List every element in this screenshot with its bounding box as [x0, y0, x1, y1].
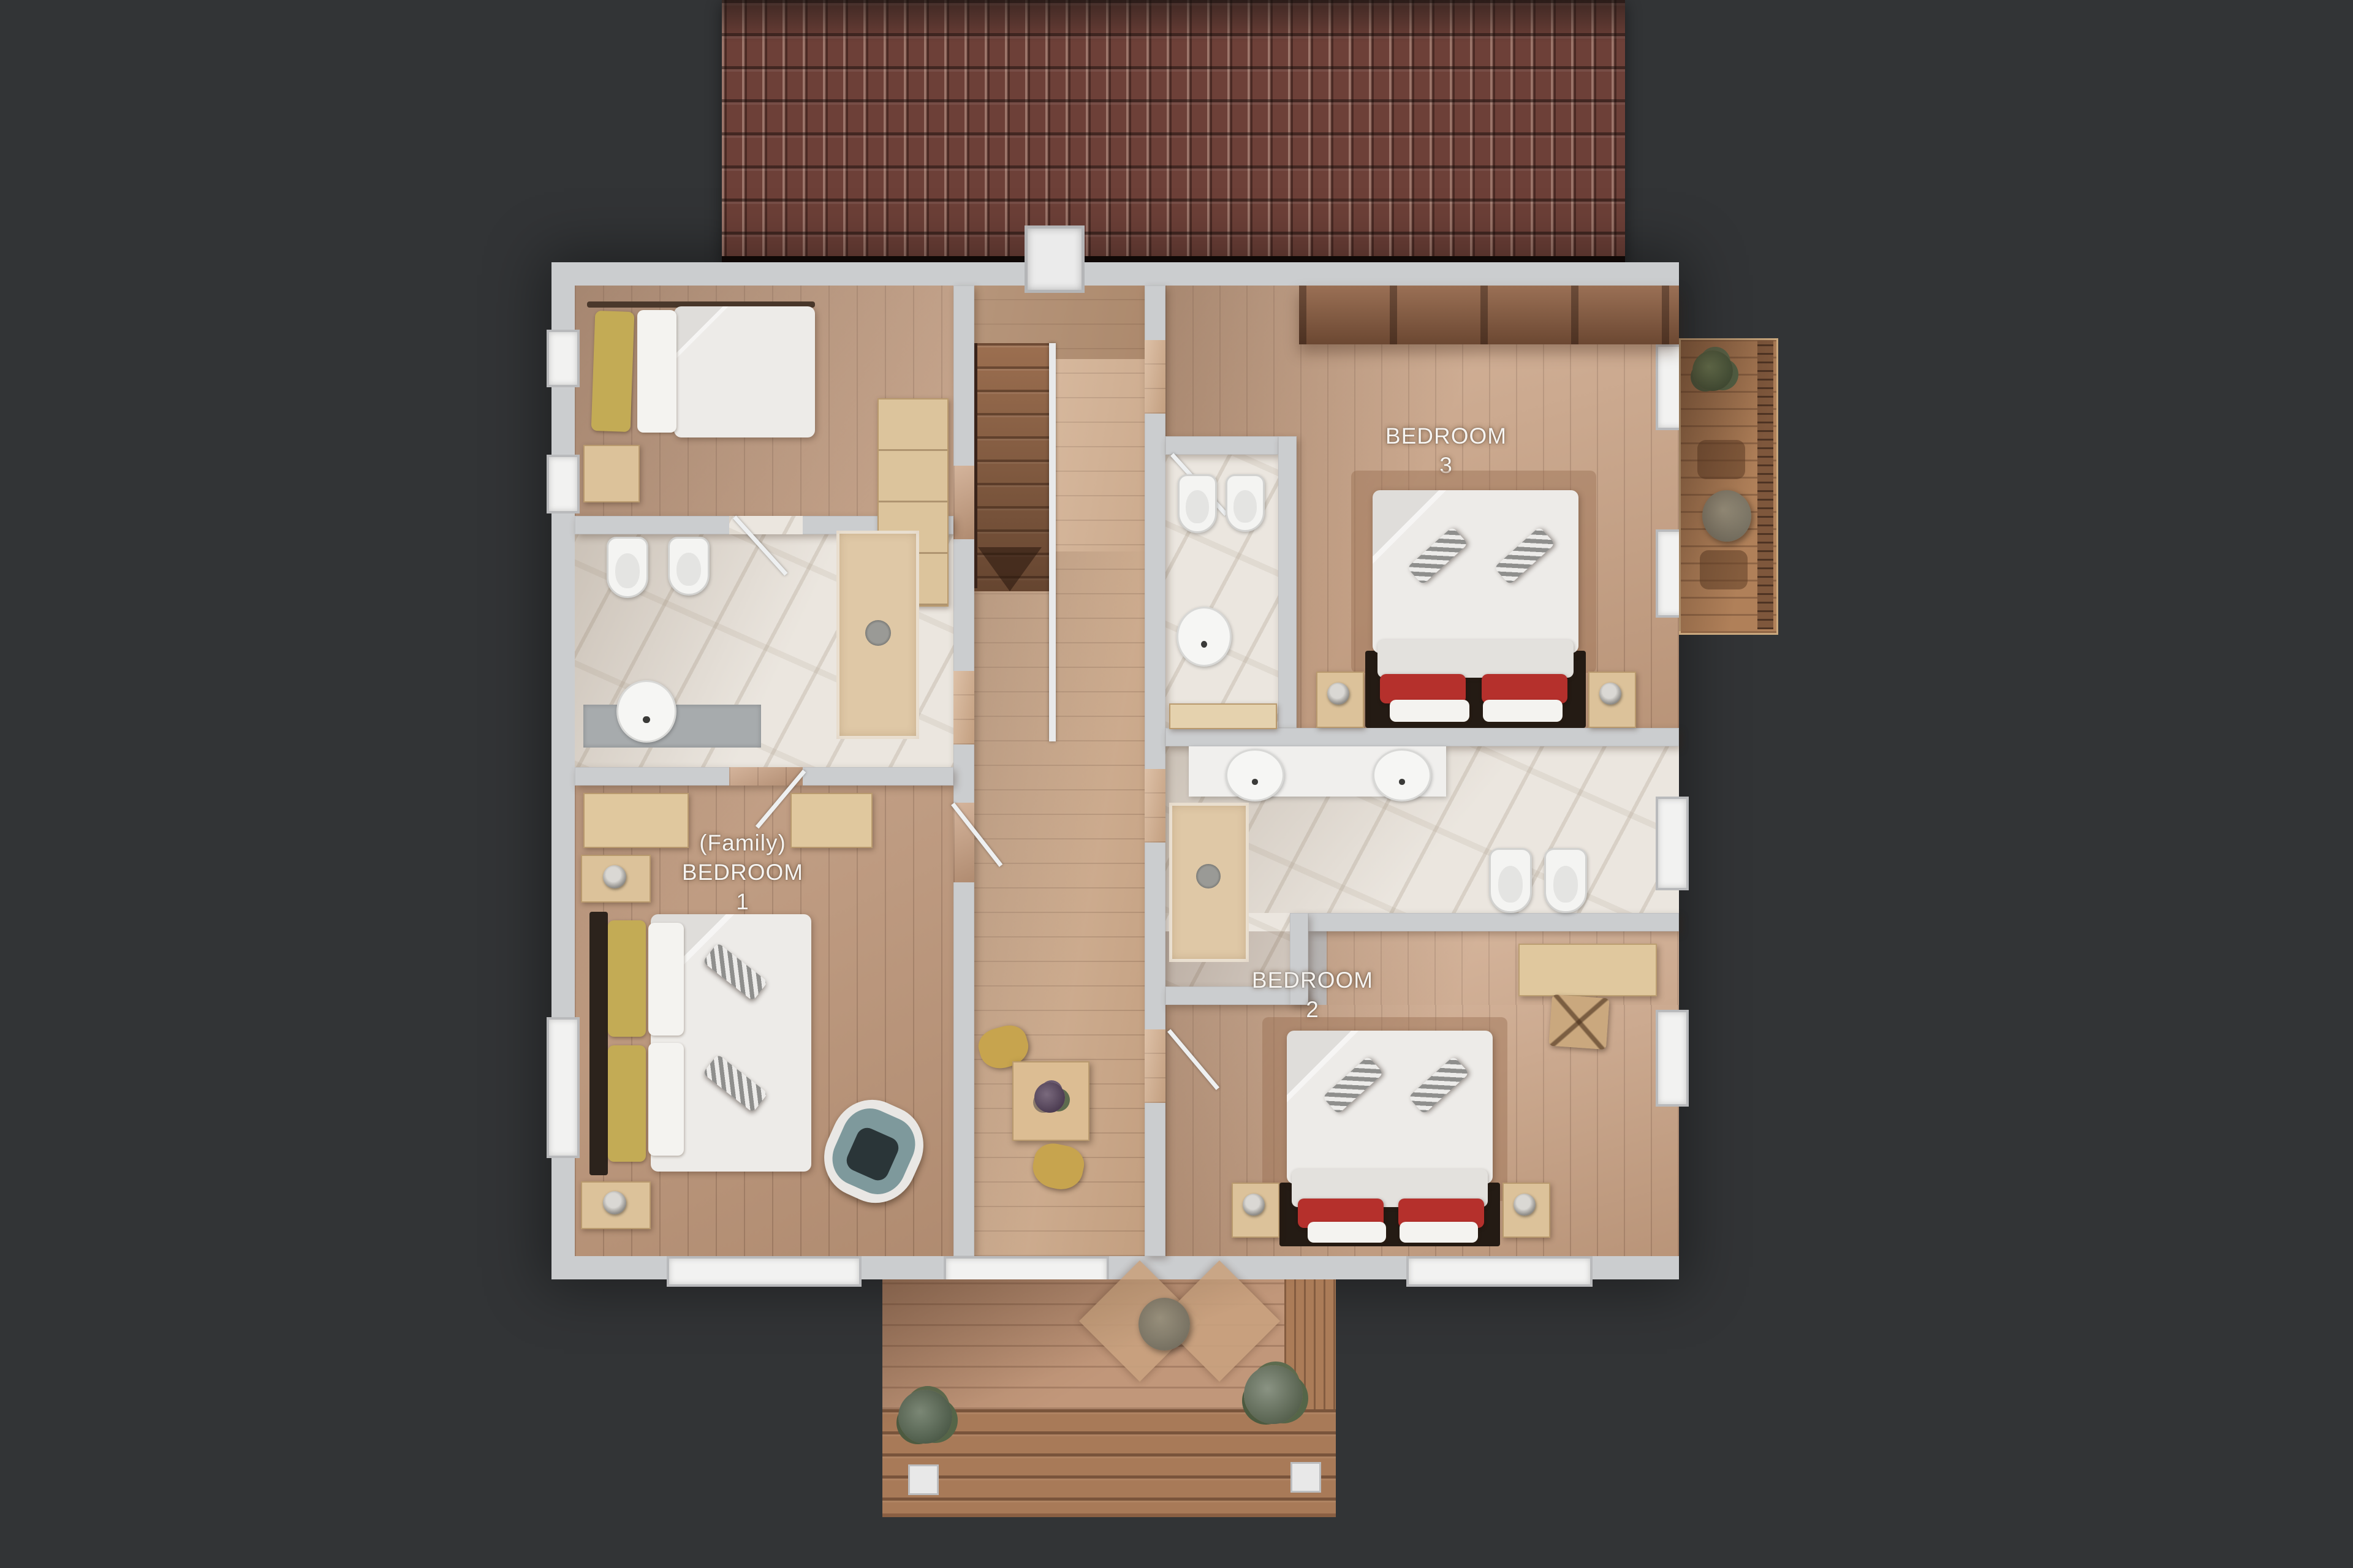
balcony-railing: [1757, 340, 1773, 629]
window-alcove-left: [547, 330, 580, 387]
shared-bath-sink-b: [1373, 749, 1431, 801]
wall-suite-hall: [953, 286, 974, 1256]
window-bedroom2-right: [1656, 1010, 1689, 1107]
bedroom2-pillow-white-b: [1400, 1222, 1478, 1243]
bedroom1-pillow-yellow-b: [608, 1045, 646, 1162]
bidet-left-bath: [668, 537, 710, 596]
label-bedroom3-line1: BEDROOM: [1354, 422, 1538, 451]
balcony-plant: [1692, 350, 1733, 391]
bedroom2-door-opening: [1145, 1029, 1165, 1103]
ensuite-vanity: [1169, 703, 1277, 729]
terrace-table: [1139, 1298, 1190, 1350]
wall-bedroom3-bath: [1165, 728, 1679, 746]
terrace-post-right: [1290, 1462, 1321, 1493]
bedroom3-duvet: [1373, 490, 1578, 653]
stair-direction-marker: [978, 547, 1042, 591]
bidet-ensuite: [1226, 474, 1265, 532]
bedroom3-pillow-band: [1377, 640, 1574, 678]
bedroom3-closet: [1299, 286, 1679, 344]
toilet-ensuite: [1178, 474, 1217, 533]
label-family-line3: 1: [651, 887, 835, 917]
sink-left-bath: [616, 680, 676, 743]
bedroom3-pillow-red-a: [1380, 674, 1466, 703]
wall-ensuite-top: [1165, 436, 1278, 455]
bedroom1-pillow-white-a: [648, 923, 684, 1036]
floor-plan-render: (Family) BEDROOM 1 BEDROOM 3: [0, 0, 2353, 1568]
label-family-line2: BEDROOM: [651, 858, 835, 887]
bedroom1-lamp-top: [603, 865, 626, 888]
bedroom2-pillow-white-a: [1308, 1222, 1386, 1243]
nook-plant: [1034, 1082, 1065, 1113]
sink-ensuite: [1176, 607, 1232, 667]
bedroom2-duvet: [1287, 1031, 1493, 1184]
alcove-nightstand: [583, 445, 640, 502]
bedroom2-desk: [1518, 944, 1657, 996]
balcony-chair-top: [1697, 440, 1745, 479]
wall-ensuite-right: [1278, 436, 1297, 728]
stair-railing: [974, 343, 977, 588]
label-bedroom2-line1: BEDROOM: [1221, 966, 1404, 995]
label-family-line1: (Family): [651, 828, 835, 858]
bedroom2-chair: [1548, 994, 1610, 1050]
window-bedroom1-bottom: [667, 1256, 862, 1287]
bedroom3-lamp-left: [1327, 683, 1349, 705]
glass-balustrade: [1049, 343, 1056, 741]
bedroom3-lamp-right: [1599, 683, 1621, 705]
balcony-chair-bottom: [1700, 550, 1748, 589]
terrace-post-left: [908, 1464, 939, 1495]
window-bath-left: [547, 455, 580, 513]
bedroom1-pillow-white-b: [648, 1043, 684, 1156]
alcove-bed-duvet: [674, 306, 815, 437]
bedroom2-lamp-left: [1243, 1194, 1265, 1216]
bath-left-door-opening: [953, 671, 974, 744]
bedroom3-pillow-white-a: [1390, 700, 1469, 722]
shower-drain-left: [865, 620, 891, 646]
window-bath-right: [1656, 797, 1689, 890]
bedroom3-door-opening: [1145, 340, 1165, 414]
alcove-door-opening: [953, 466, 974, 539]
bedroom1-lamp-bottom: [603, 1191, 626, 1214]
window-bedroom2-bottom: [1406, 1256, 1593, 1287]
roof-tiles: [722, 0, 1625, 263]
toilet-left-bath: [607, 537, 648, 598]
bedroom3-pillow-red-b: [1482, 674, 1567, 703]
balcony-table: [1702, 490, 1751, 542]
shared-bath-toilet: [1544, 848, 1587, 913]
shared-bath-bidet: [1489, 848, 1532, 913]
terrace-plant-left: [898, 1390, 952, 1444]
label-family-bedroom-1: (Family) BEDROOM 1: [651, 828, 835, 917]
wall-bath-bedroom2-a: [1308, 913, 1679, 931]
shared-bath-sink-a: [1226, 749, 1284, 801]
terrace-plant-right: [1244, 1365, 1303, 1424]
window-bedroom1-left: [547, 1017, 580, 1158]
bedroom2-lamp-right: [1514, 1194, 1536, 1216]
alcove-pillow-white: [637, 310, 676, 433]
bedroom1-headboard: [589, 912, 608, 1175]
label-bedroom-2: BEDROOM 2: [1221, 966, 1404, 1025]
shared-bath-door-opening: [1145, 769, 1165, 843]
bedroom3-pillow-white-b: [1483, 700, 1563, 722]
chimney: [1025, 225, 1085, 293]
bedroom1-pillow-yellow-a: [608, 920, 646, 1037]
shared-bath-shower-head: [1196, 864, 1221, 888]
alcove-pillow-yellow: [591, 311, 635, 432]
